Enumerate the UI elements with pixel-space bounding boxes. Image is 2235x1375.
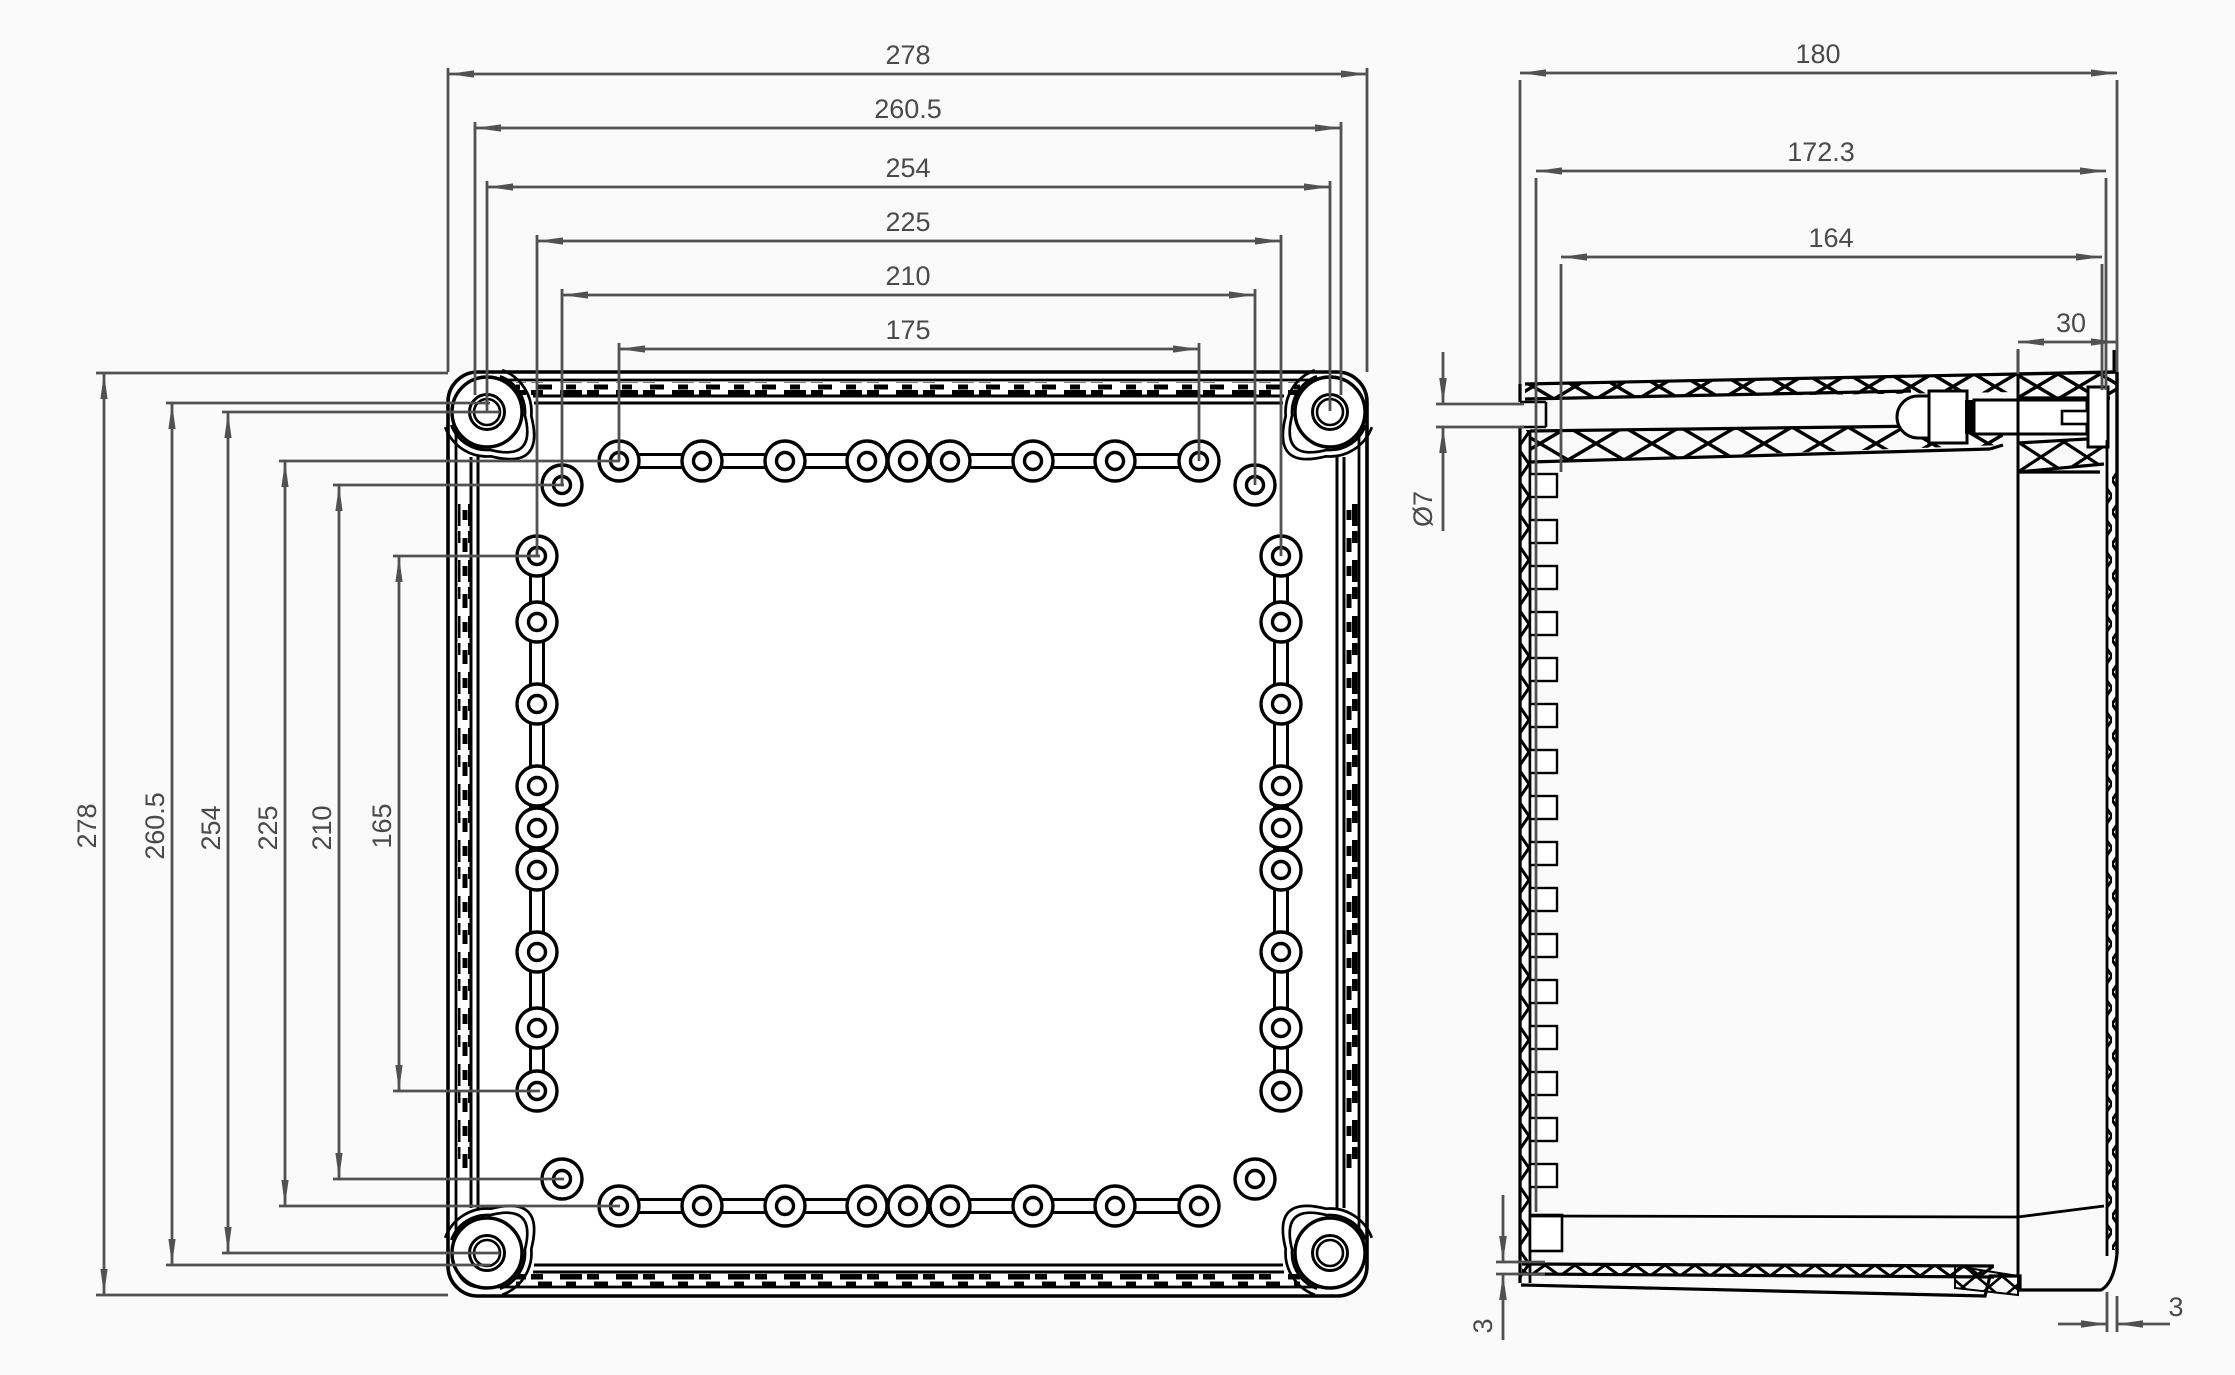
svg-text:254: 254 [885,153,930,183]
svg-text:225: 225 [885,207,930,237]
svg-text:30: 30 [2056,308,2086,338]
svg-text:260.5: 260.5 [874,94,942,124]
svg-text:260.5: 260.5 [140,792,170,860]
svg-text:172.3: 172.3 [1787,137,1855,167]
svg-text:278: 278 [72,803,102,848]
svg-text:254: 254 [196,805,226,850]
svg-text:180: 180 [1795,39,1840,69]
svg-text:225: 225 [253,805,283,850]
svg-text:210: 210 [885,261,930,291]
svg-text:175: 175 [885,315,930,345]
svg-text:210: 210 [307,805,337,850]
svg-text:Ø7: Ø7 [1408,491,1438,527]
svg-text:3: 3 [1468,1318,1498,1333]
svg-text:3: 3 [2168,1292,2183,1322]
svg-text:164: 164 [1808,223,1853,253]
svg-text:278: 278 [885,40,930,70]
svg-text:165: 165 [367,803,397,848]
